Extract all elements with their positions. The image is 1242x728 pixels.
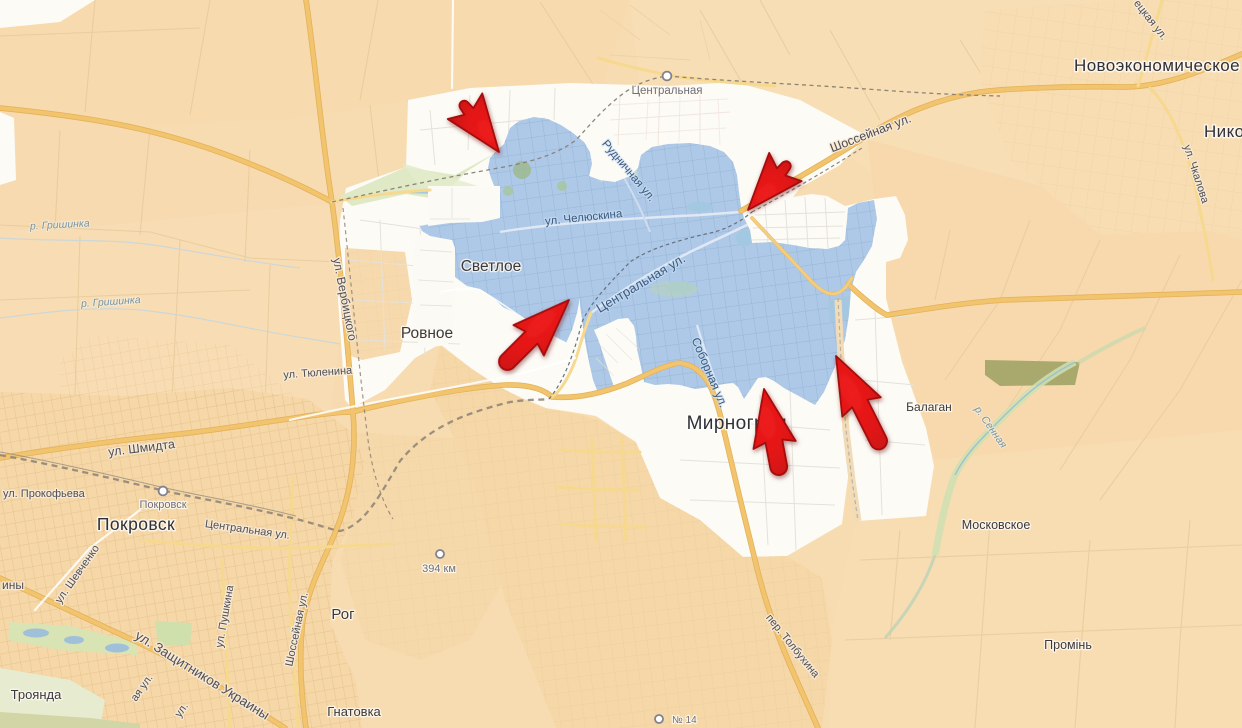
svg-text:№ 14: № 14	[672, 715, 697, 726]
svg-text:Балаган: Балаган	[906, 400, 952, 414]
svg-text:Московское: Московское	[962, 518, 1031, 532]
svg-text:Покровск: Покровск	[97, 514, 175, 534]
svg-text:Гнатовка: Гнатовка	[327, 704, 381, 719]
svg-text:Центральная: Центральная	[632, 85, 703, 97]
svg-text:Рог: Рог	[331, 606, 355, 623]
svg-text:ул. Прокофьева: ул. Прокофьева	[3, 488, 86, 500]
svg-text:ины: ины	[2, 578, 24, 592]
svg-text:Светлое: Светлое	[461, 258, 522, 275]
svg-text:Промінь: Промінь	[1044, 638, 1092, 652]
svg-text:394 км: 394 км	[422, 563, 456, 575]
svg-text:Новоэкономическое: Новоэкономическое	[1074, 56, 1240, 75]
svg-text:Никол: Никол	[1204, 122, 1242, 141]
svg-text:Ровное: Ровное	[401, 325, 453, 342]
svg-text:Покровск: Покровск	[139, 499, 186, 511]
svg-text:Троянда: Троянда	[11, 687, 62, 702]
